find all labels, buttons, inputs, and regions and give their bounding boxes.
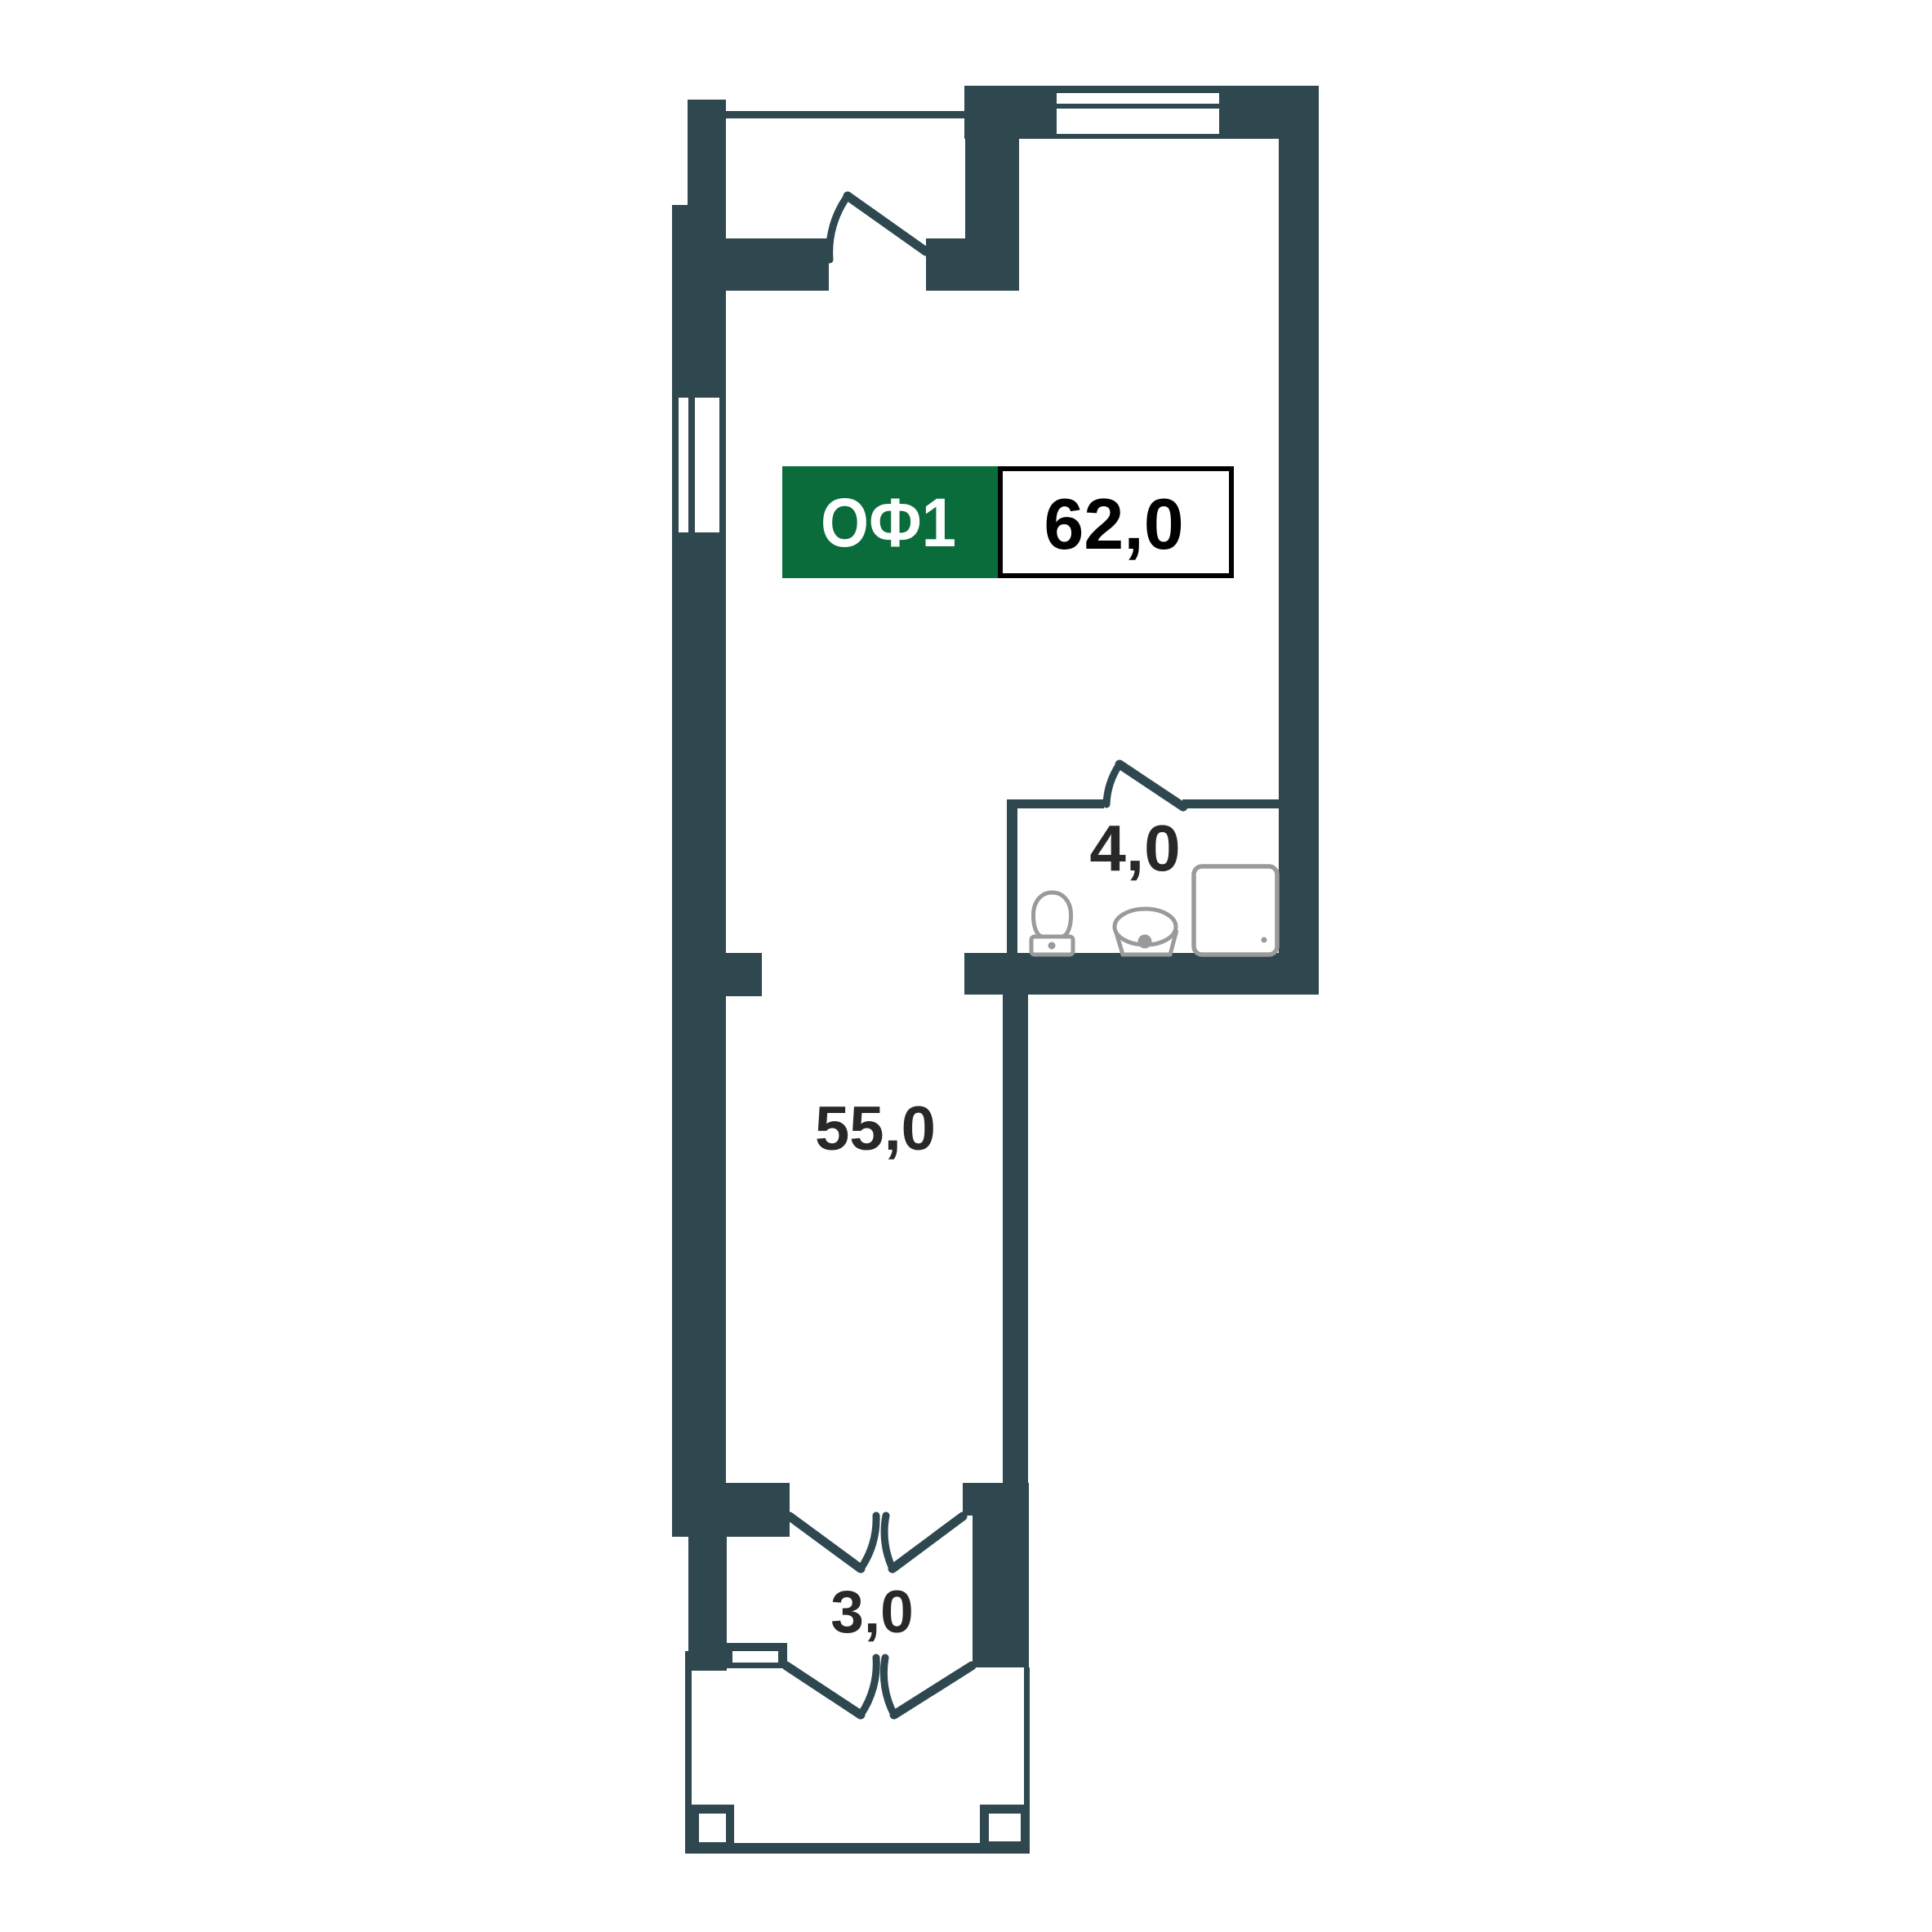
svg-text:4,0: 4,0 bbox=[1089, 812, 1180, 884]
svg-text:ОФ1: ОФ1 bbox=[821, 484, 956, 561]
svg-text:62,0: 62,0 bbox=[1044, 483, 1183, 564]
svg-text:55,0: 55,0 bbox=[815, 1094, 936, 1164]
svg-text:3,0: 3,0 bbox=[830, 1579, 913, 1645]
